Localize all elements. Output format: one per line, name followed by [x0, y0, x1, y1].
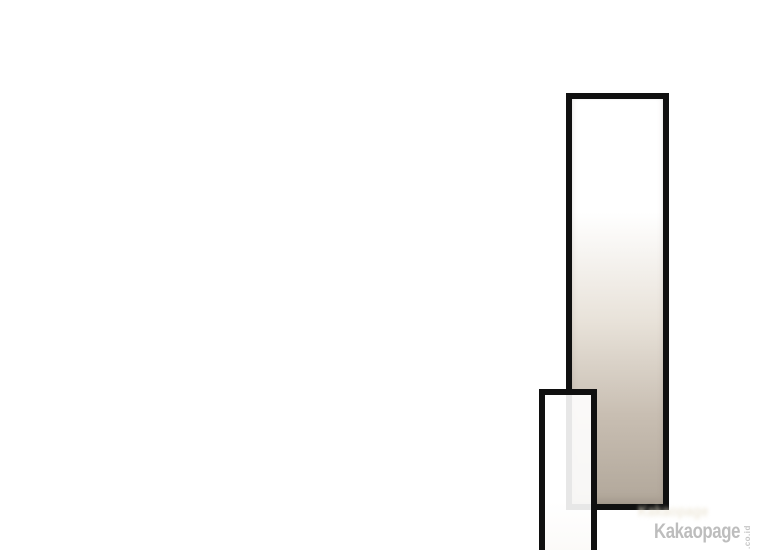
- watermark-domain-suffix: .co.id: [743, 519, 752, 549]
- watermark-ghost-text: Kakaopage: [638, 503, 708, 520]
- comic-panel-small: [539, 389, 597, 550]
- watermark-kakaopage-text: Kakaopage: [654, 520, 740, 544]
- comic-page-canvas: Kakaopage Kakaopage .co.id: [0, 0, 760, 550]
